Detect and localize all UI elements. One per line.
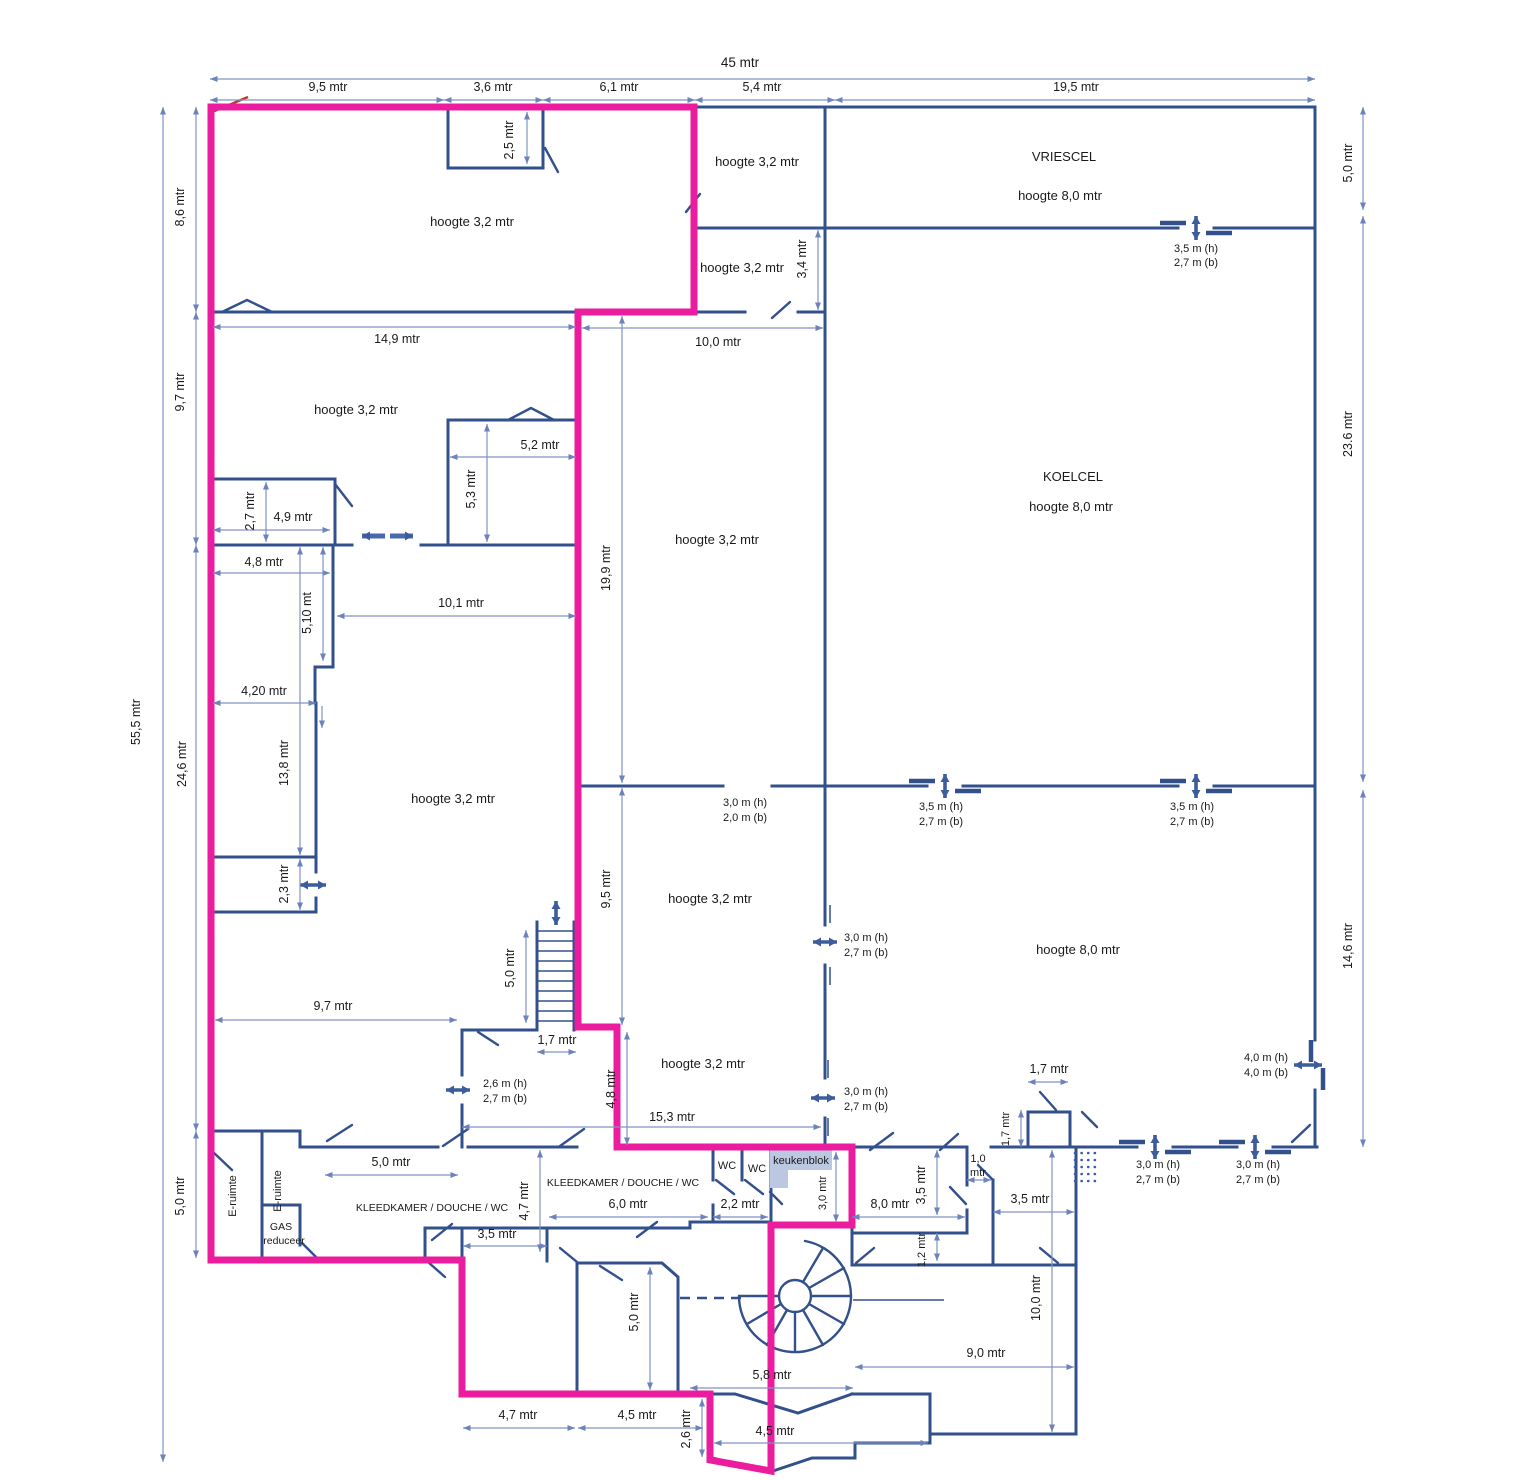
room-label-hoogte: hoogte 3,2 mtr — [661, 1056, 745, 1071]
dim-label: 5,0 mtr — [627, 1293, 641, 1332]
room-label-gas: GAS — [270, 1221, 292, 1233]
dim-label: 1,7 mtr — [538, 1033, 577, 1047]
spiral-staircase — [680, 1241, 851, 1352]
room-label-wc: WC — [718, 1160, 736, 1172]
door-size-label: 3,0 m (h) — [844, 932, 888, 944]
right-mid-walls — [993, 1112, 1076, 1434]
room-label-hoogte: hoogte 8,0 mtr — [1036, 942, 1120, 957]
step-wall — [315, 545, 333, 857]
dim-label: 19,5 mtr — [1053, 80, 1099, 94]
dim-label: 9,5 mtr — [599, 870, 613, 909]
door-size-label: 3,0 m (h) — [844, 1086, 888, 1098]
dim-label: 1,0 — [970, 1153, 985, 1165]
room-label-hoogte: hoogte 8,0 mtr — [1018, 188, 1102, 203]
dim-label: 4,7 mtr — [499, 1408, 538, 1422]
room-label-kleedkamer: KLEEDKAMER / DOUCHE / WC — [356, 1202, 509, 1214]
notch-box — [448, 107, 543, 168]
door-size-label: 2,7 m (b) — [844, 947, 888, 959]
dim-label: 24,6 mtr — [175, 741, 189, 787]
door-size-label: 2,7 m (b) — [1170, 816, 1214, 828]
room-label-hoogte: hoogte 3,2 mtr — [668, 891, 752, 906]
dim-label: 6,0 mtr — [609, 1197, 648, 1211]
dim-label: 4,8 mtr — [604, 1070, 618, 1109]
dim-label: 55,5 mtr — [129, 699, 143, 745]
dim-label: 5,4 mtr — [743, 80, 782, 94]
dimension-lines — [163, 79, 1363, 1462]
dim-label: 2,7 mtr — [243, 492, 257, 531]
door-size-label: 3,5 m (h) — [1174, 243, 1218, 255]
dim-label: 1,7 mtr — [1000, 1112, 1012, 1147]
dim-label: 10,0 mtr — [1029, 1275, 1043, 1321]
dim-label: 5,3 mtr — [464, 470, 478, 509]
room-label-eruimte: E-ruimte — [227, 1175, 239, 1217]
room-80-walls — [852, 1147, 967, 1265]
door-size-label: 3,5 m (h) — [919, 801, 963, 813]
dim-label: 23.6 mtr — [1341, 411, 1355, 457]
door-size-label: 2,0 m (b) — [723, 812, 767, 824]
dim-label: 2,3 mtr — [277, 865, 291, 904]
room-label-hoogte: hoogte 3,2 mtr — [314, 402, 398, 417]
room-label-hoogte: hoogte 3,2 mtr — [700, 260, 784, 275]
dim-label: 3,0 mtr — [817, 1176, 829, 1211]
dim-label: 8,6 mtr — [173, 188, 187, 227]
walls — [211, 107, 1323, 1472]
door-size-label: 4,0 m (h) — [1244, 1052, 1288, 1064]
dim-label: 10,0 mtr — [695, 335, 741, 349]
stair-rungs — [537, 931, 574, 1021]
door-size-label: 2,7 m (b) — [844, 1101, 888, 1113]
dim-label-total-width: 45 mtr — [721, 55, 760, 70]
dim-label: 4,5 mtr — [618, 1408, 657, 1422]
staircase — [537, 922, 574, 1030]
door-jogs — [828, 905, 830, 1136]
dim-label: 4,5 mtr — [756, 1424, 795, 1438]
door-size-labels: 3,5 m (h) 2,7 m (b) 3,0 m (h) 2,0 m (b) … — [483, 243, 1288, 1186]
dim-label: 5,0 mtr — [1341, 144, 1355, 183]
dim-label: 3,5 mtr — [1011, 1192, 1050, 1206]
room-label-kleedkamer: KLEEDKAMER / DOUCHE / WC — [547, 1177, 700, 1189]
dim-label: 4,7 mtr — [517, 1182, 531, 1221]
room-label-koelcel: KOELCEL — [1043, 469, 1103, 484]
room-label-keukenblok: keukenblok — [773, 1155, 829, 1167]
floorplan-page: 45 mtr 9,5 mtr 3,6 mtr 6,1 mtr 5,4 mtr 1… — [0, 0, 1516, 1480]
d im-label: 3,4 mtr — [795, 240, 809, 279]
dim-label: 9,7 mtr — [314, 999, 353, 1013]
dim-label: 3,5 mtr — [478, 1227, 517, 1241]
door-size-label: 4,0 m (b) — [1244, 1067, 1288, 1079]
room-label-hoogte: hoogte 3,2 mtr — [715, 154, 799, 169]
door-size-label: 2,7 m (b) — [1136, 1174, 1180, 1186]
dim-label: 14,9 mtr — [374, 332, 420, 346]
dim-label: 5,0 mtr — [503, 949, 517, 988]
room-label-vriescel: VRIESCEL — [1032, 149, 1096, 164]
dim-label: 4,8 mtr — [245, 555, 284, 569]
dim-label: 5,0 mtr — [372, 1155, 411, 1169]
dim-label: 9,0 mtr — [967, 1346, 1006, 1360]
door-swings — [213, 148, 1310, 1280]
door-size-label: 3,0 m (h) — [1236, 1159, 1280, 1171]
door-size-label: 3,0 m (h) — [1136, 1159, 1180, 1171]
room-label-hoogte: hoogte 8,0 mtr — [1029, 499, 1113, 514]
floorplan-drawing: 45 mtr 9,5 mtr 3,6 mtr 6,1 mtr 5,4 mtr 1… — [0, 0, 1516, 1480]
dim-label: 2,2 mtr — [721, 1197, 760, 1211]
door-size-label: 2,7 m (b) — [483, 1093, 527, 1105]
dim-label: 10,1 mtr — [438, 596, 484, 610]
dim-label: 19,9 mtr — [599, 545, 613, 591]
room-label-hoogte: hoogte 3,2 mtr — [675, 532, 759, 547]
room-label-hoogte: hoogte 3,2 mtr — [430, 214, 514, 229]
door-size-label: 2,7 m (b) — [1174, 257, 1218, 269]
dim-label: 8,0 mtr — [871, 1197, 910, 1211]
dim-label: 4,20 mtr — [241, 684, 287, 698]
dim-label: 9,7 mtr — [173, 373, 187, 412]
dim-label: 2,5 mtr — [502, 121, 516, 160]
hatch-dots — [1075, 1153, 1098, 1181]
door-size-label: 2,7 m (b) — [1236, 1174, 1280, 1186]
door-flank-bars — [909, 223, 1323, 1152]
dim-label: 5,10 mt — [300, 592, 314, 634]
room-label-eruimte: E-ruimte — [272, 1170, 284, 1212]
door-size-label: 2,7 m (b) — [919, 816, 963, 828]
dim-label: 5,0 mtr — [173, 1177, 187, 1216]
room-label-gas: reduceer — [263, 1235, 305, 1247]
dim-label: 1,7 mtr — [1030, 1062, 1069, 1076]
dim-label: 15,3 mtr — [649, 1110, 695, 1124]
dim-label: 6,1 mtr — [600, 80, 639, 94]
dim-label: 3,5 mtr — [914, 1166, 928, 1205]
dim-label: 14,6 mtr — [1341, 923, 1355, 969]
dim-label: 9,5 mtr — [309, 80, 348, 94]
door-size-arrows — [300, 216, 1322, 1159]
dim-label: 1,2 mtr — [916, 1233, 928, 1268]
spiral-hub — [779, 1280, 811, 1312]
dim-label: 4,9 mtr — [274, 510, 313, 524]
door-size-label: 3,0 m (h) — [723, 797, 767, 809]
room-label-wc: WC — [748, 1163, 766, 1175]
dim-label: mtr — [970, 1167, 986, 1179]
room-label-hoogte: hoogte 3,2 mtr — [411, 791, 495, 806]
door-size-label: 3,5 m (h) — [1170, 801, 1214, 813]
dim-label: 13,8 mtr — [277, 740, 291, 786]
dim-label: 5,8 mtr — [753, 1368, 792, 1382]
dim-label: 2,6 mtr — [679, 1410, 693, 1449]
stair-rails — [537, 922, 574, 1030]
dim-label: 5,2 mtr — [521, 438, 560, 452]
dim-label: 3,6 mtr — [474, 80, 513, 94]
door-size-label: 2,6 m (h) — [483, 1078, 527, 1090]
